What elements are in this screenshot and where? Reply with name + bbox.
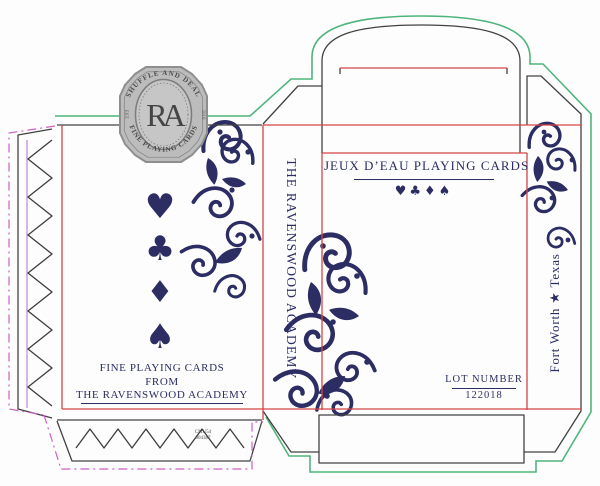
front-title-rule: [354, 179, 494, 180]
print-code-line2: 004387: [184, 436, 222, 442]
wave-line: [28, 140, 52, 406]
back-tagline-line3: THE RAVENSWOOD ACADEMY: [70, 389, 254, 403]
lot-number-value: 122018: [434, 390, 534, 402]
badge-year-text: 2016: [200, 110, 205, 121]
brand-seal-badge: SHUFFLE AND DEAL FINE PLAYING CARDS RA E…: [116, 63, 211, 167]
badge-monogram: RA: [146, 97, 185, 133]
suit-heart: ♥: [120, 190, 200, 224]
suit-club: ♣: [120, 232, 200, 266]
dieline-drawing: [0, 0, 600, 486]
left-spine-title: THE RAVENSWOOD ACADEMY: [283, 158, 299, 380]
suit-spade: ♠: [120, 320, 200, 354]
flourish-right-spine: [522, 123, 575, 250]
back-tagline-line2: FROM: [70, 376, 254, 390]
front-suits-row: ♥♣♦♠: [324, 184, 524, 199]
lot-number-label: LOT NUMBER: [434, 374, 534, 386]
front-title: JEUX D’EAU PLAYING CARDS: [324, 158, 524, 174]
back-tagline-rule: [81, 403, 243, 404]
badge-est-text: EST.: [123, 110, 128, 120]
suit-diamond: ♦: [120, 278, 200, 308]
lot-number-rule: [452, 388, 516, 389]
tuckbox-dieline-canvas: SHUFFLE AND DEAL FINE PLAYING CARDS RA E…: [0, 0, 600, 486]
back-tagline-line1: FINE PLAYING CARDS: [70, 362, 254, 376]
print-code: CMU54 004387: [184, 430, 222, 441]
right-spine-title: Fort Worth ★ Texas: [547, 234, 564, 392]
